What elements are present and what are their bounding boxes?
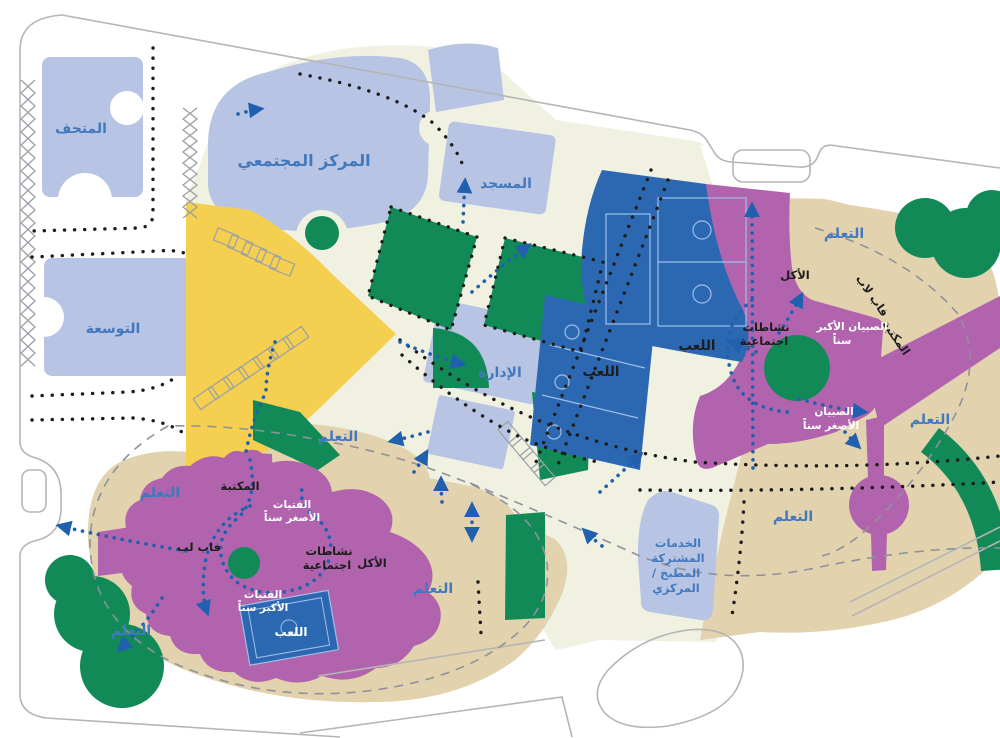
label-shared-services: / المطبخ — [652, 566, 700, 580]
label-fablab-left: فاب لب — [177, 540, 221, 554]
label-play: اللعب — [582, 364, 619, 380]
parking-bay-left — [22, 470, 46, 512]
lollipop-circle — [849, 475, 909, 535]
label-learning: التعلم — [773, 509, 813, 525]
road-island — [597, 629, 743, 727]
label-expansion: التوسعة — [86, 321, 141, 337]
label-learning: التعلم — [413, 581, 453, 597]
road-line-2 — [300, 697, 572, 737]
label-boys-older: الصبيان الأكبر — [815, 320, 887, 333]
label-girls-younger: الأصغر سناً — [264, 510, 320, 524]
label-museum: المتحف — [55, 121, 107, 137]
label-social-left: نشاطات — [305, 544, 352, 558]
hedge-band — [505, 512, 545, 620]
region-mosque — [438, 121, 556, 215]
label-play-court: اللعب — [275, 625, 308, 639]
label-learning: التعلم — [824, 226, 864, 242]
site-plan-map: المتحف المركز المجتمعي التوسعة المسجد ال… — [0, 0, 1000, 738]
label-girls-older: الأكبر سناً — [238, 600, 289, 614]
label-learning: التعلم — [111, 623, 151, 639]
label-learning: التعلم — [140, 485, 180, 501]
label-play: اللعب — [678, 338, 715, 354]
label-shared-services: المركزي — [652, 581, 700, 595]
label-learning: التعلم — [910, 412, 950, 428]
label-social-left: اجتماعية — [303, 558, 351, 572]
label-learning: التعلم — [318, 429, 358, 445]
label-library-left: المكتبة — [220, 479, 259, 493]
courtyard-left — [228, 547, 260, 579]
label-eating-left: الأكل — [357, 556, 386, 570]
site-plan-svg: المتحف المركز المجتمعي التوسعة المسجد ال… — [0, 0, 1000, 738]
lollipop-stem-up — [866, 416, 884, 478]
label-girls-older: الفتيات — [244, 589, 282, 601]
label-boys-younger: الصبيان — [814, 406, 853, 418]
label-girls-younger: الفتيات — [273, 499, 311, 511]
label-shared-services: الخدمات — [655, 536, 701, 550]
label-shared-services: المشتركة — [651, 551, 704, 565]
label-mosque: المسجد — [480, 176, 532, 192]
label-admin: الإدارة — [478, 365, 522, 381]
label-community-center: المركز المجتمعي — [237, 151, 370, 171]
tree-circle — [305, 216, 339, 250]
label-social-right: نشاطات — [742, 320, 789, 334]
label-eating-right: الأكل — [780, 268, 809, 282]
region-mosque-upper — [428, 43, 504, 112]
region-community-center — [208, 56, 430, 231]
label-boys-younger: الأصغر سناً — [803, 418, 859, 432]
region-expansion — [44, 258, 192, 376]
lollipop-stem-down — [871, 533, 887, 571]
label-boys-older: سناً — [833, 333, 852, 347]
label-social-right: اجتماعية — [740, 334, 788, 348]
